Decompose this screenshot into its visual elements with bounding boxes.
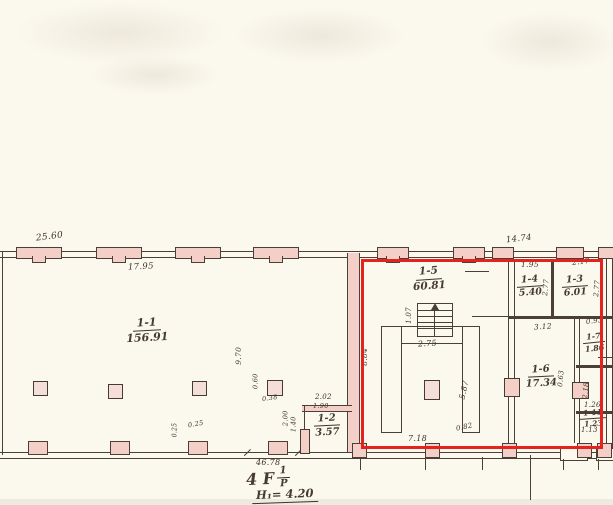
paper-smudge bbox=[15, 2, 225, 64]
pilaster bbox=[110, 441, 130, 455]
dim-v-1-1: 9.70 bbox=[235, 347, 243, 365]
dim-h-1-2-b: 1.40 bbox=[291, 416, 298, 432]
dim-col-h: 0.60 bbox=[253, 373, 260, 389]
survey-area-outline bbox=[361, 259, 603, 449]
dim-w-1-2-a: 2.02 bbox=[315, 394, 332, 401]
witness-line bbox=[360, 457, 361, 470]
dim-top-left: 25.60 bbox=[36, 231, 64, 243]
dim-col-w: 0.38 bbox=[262, 394, 278, 403]
witness-line bbox=[530, 455, 531, 500]
dim-w-1-2-b: 1.90 bbox=[313, 403, 329, 410]
pilaster bbox=[96, 247, 142, 259]
dim-span-right: 14.74 bbox=[506, 234, 533, 245]
witness-line bbox=[482, 457, 483, 470]
witness-line bbox=[598, 459, 599, 470]
pilaster bbox=[253, 247, 299, 259]
pilaster bbox=[28, 441, 48, 455]
witness-line bbox=[425, 457, 426, 470]
column bbox=[33, 381, 48, 396]
dim-pilaster-a: 0.25 bbox=[172, 423, 178, 438]
pilaster bbox=[268, 441, 288, 455]
column bbox=[108, 384, 123, 399]
room-area: 156.91 bbox=[115, 329, 180, 345]
ceiling-height-label: H₁= 4.20 bbox=[252, 486, 318, 504]
pilaster bbox=[188, 441, 208, 455]
floor-prefix: 4 F bbox=[246, 469, 275, 489]
dim-pilaster-b: 0.25 bbox=[188, 420, 205, 429]
wall-party bbox=[347, 253, 360, 452]
fraction-numerator: 1 bbox=[276, 466, 290, 479]
paper-smudge bbox=[90, 55, 220, 95]
pilaster bbox=[175, 247, 221, 259]
dim-h-1-2-a: 2.00 bbox=[283, 410, 290, 426]
pilaster bbox=[16, 247, 62, 259]
pilaster bbox=[377, 247, 409, 259]
wall-top bbox=[0, 251, 613, 258]
pilaster bbox=[492, 247, 514, 259]
room-number: 1-1 bbox=[132, 316, 161, 332]
witness-line bbox=[563, 459, 564, 470]
dim-span-1-1: 17.95 bbox=[128, 262, 154, 272]
paper-smudge bbox=[235, 8, 405, 63]
paper-smudge bbox=[480, 12, 613, 72]
room-label-1-1: 1-1 156.91 bbox=[114, 315, 179, 345]
floorplan-scan: 1-1 156.91 1-2 3.57 1-5 60.81 1-4 5.40 1… bbox=[0, 0, 613, 505]
wall-left-edge bbox=[2, 252, 3, 455]
room-label-1-2: 1-2 3.57 bbox=[306, 412, 347, 439]
pilaster bbox=[453, 247, 485, 259]
pilaster bbox=[598, 247, 613, 259]
column bbox=[192, 381, 207, 396]
room-area: 3.57 bbox=[307, 425, 348, 439]
room-number: 1-2 bbox=[313, 412, 340, 426]
wall-room-1-2 bbox=[304, 405, 305, 429]
